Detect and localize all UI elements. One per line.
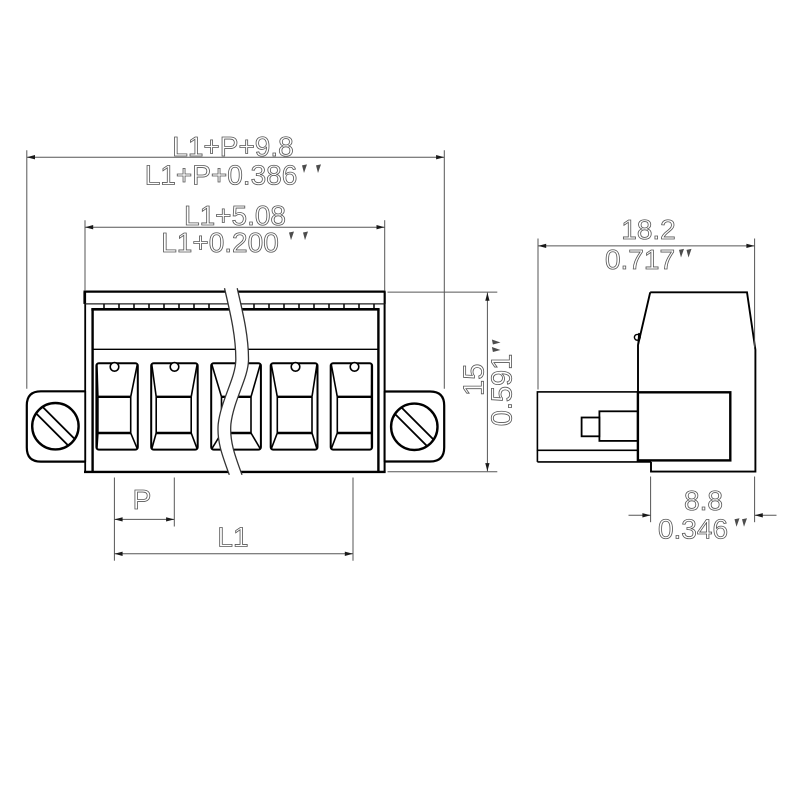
svg-text:18.2: 18.2	[621, 214, 676, 245]
svg-text:L1: L1	[217, 522, 248, 553]
svg-text:0.717: 0.717	[605, 244, 675, 275]
svg-text:P: P	[133, 484, 152, 515]
svg-text:L1+P+0.386: L1+P+0.386	[145, 159, 298, 190]
svg-text:0.591: 0.591	[487, 354, 519, 427]
svg-text:L1+0.200: L1+0.200	[161, 227, 279, 258]
svg-text:8.8: 8.8	[684, 485, 723, 516]
svg-text:0.346: 0.346	[658, 513, 728, 544]
